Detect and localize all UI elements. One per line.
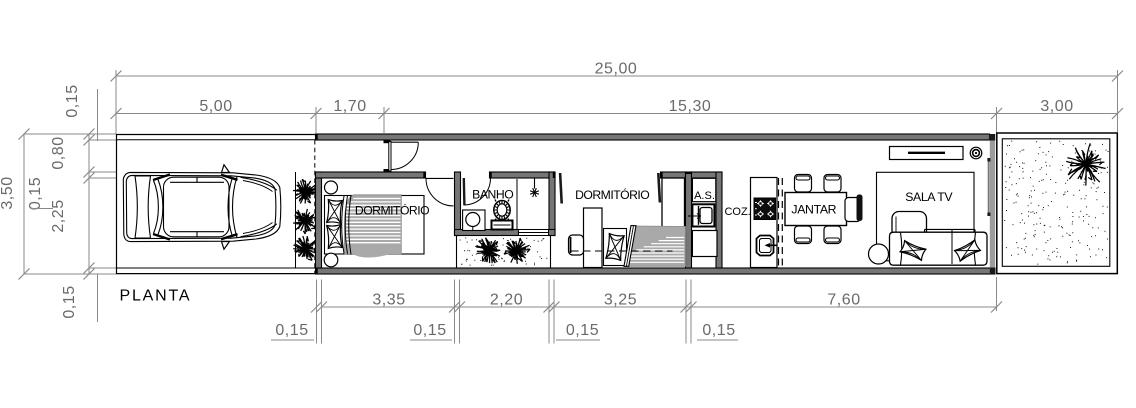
svg-text:0,15: 0,15 xyxy=(566,322,599,339)
svg-text:3,25: 3,25 xyxy=(604,292,637,309)
svg-text:0,15: 0,15 xyxy=(64,84,81,117)
svg-text:2,20: 2,20 xyxy=(490,292,523,309)
svg-text:0,15: 0,15 xyxy=(275,322,308,339)
svg-text:0,15: 0,15 xyxy=(413,322,446,339)
svg-text:SALA TV: SALA TV xyxy=(905,190,953,204)
svg-text:BANHO: BANHO xyxy=(472,188,513,202)
svg-text:0,15: 0,15 xyxy=(61,285,78,318)
svg-text:2,25: 2,25 xyxy=(50,199,67,232)
svg-text:JANTAR: JANTAR xyxy=(791,203,836,217)
svg-text:PLANTA: PLANTA xyxy=(120,287,192,304)
svg-text:DORMITÓRIO: DORMITÓRIO xyxy=(575,187,649,202)
svg-text:3,50: 3,50 xyxy=(0,176,16,209)
svg-text:0,80: 0,80 xyxy=(50,136,67,169)
svg-text:COZ.: COZ. xyxy=(724,206,750,218)
svg-text:A.S.: A.S. xyxy=(694,190,715,202)
svg-text:1,70: 1,70 xyxy=(333,98,366,115)
svg-text:3,00: 3,00 xyxy=(1040,98,1073,115)
svg-text:15,30: 15,30 xyxy=(669,98,712,115)
svg-text:7,60: 7,60 xyxy=(827,292,860,309)
svg-text:0,15: 0,15 xyxy=(702,322,735,339)
svg-text:3,35: 3,35 xyxy=(372,292,405,309)
svg-text:0,15: 0,15 xyxy=(27,177,44,210)
svg-text:5,00: 5,00 xyxy=(199,98,232,115)
svg-text:25,00: 25,00 xyxy=(595,61,638,78)
svg-text:DORMITÓRIO: DORMITÓRIO xyxy=(355,203,429,218)
